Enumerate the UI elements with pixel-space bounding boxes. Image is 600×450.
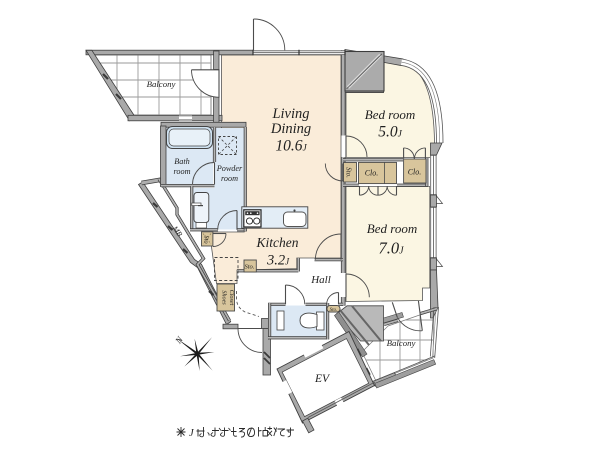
- svg-text:Balcony: Balcony: [147, 79, 176, 89]
- svg-text:N: N: [173, 334, 186, 346]
- svg-text:Kitchen: Kitchen: [256, 235, 299, 250]
- svg-text:Bed room: Bed room: [365, 107, 415, 122]
- svg-text:Bath: Bath: [174, 157, 189, 166]
- svg-text:Sto.: Sto.: [345, 167, 353, 178]
- svg-text:Sto.: Sto.: [245, 264, 255, 271]
- svg-text:room: room: [174, 167, 191, 176]
- svg-text:J: J: [189, 428, 195, 439]
- svg-text:Powder: Powder: [216, 164, 243, 173]
- svg-text:Clo.: Clo.: [365, 169, 379, 178]
- svg-text:Balcony: Balcony: [387, 338, 416, 348]
- svg-text:Bed room: Bed room: [367, 221, 417, 236]
- svg-text:Hall: Hall: [310, 274, 331, 286]
- svg-text:Clo.: Clo.: [408, 168, 422, 177]
- svg-text:Sto: Sto: [203, 235, 210, 244]
- svg-text:Living: Living: [271, 106, 309, 122]
- svg-text:Closet: Closet: [228, 290, 235, 306]
- svg-text:room: room: [221, 174, 238, 183]
- svg-text:Sto.: Sto.: [330, 308, 338, 313]
- svg-text:Dining: Dining: [270, 121, 311, 137]
- svg-text:EV: EV: [314, 373, 331, 385]
- svg-text:Shoes: Shoes: [221, 290, 228, 305]
